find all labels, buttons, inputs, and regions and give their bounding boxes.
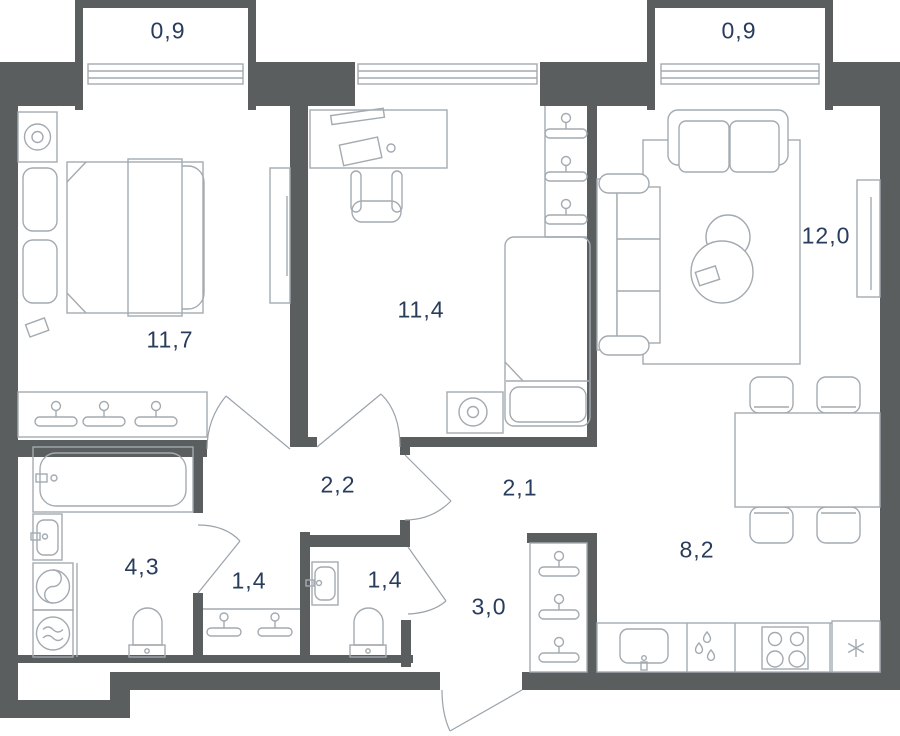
door-swing-room xyxy=(317,394,400,447)
loveseat-icon xyxy=(597,174,660,355)
dishwasher-icon xyxy=(695,632,714,660)
door-swing-entrance xyxy=(442,690,522,731)
bath-sink-icon xyxy=(31,514,62,560)
balcony-window-icon xyxy=(661,64,819,84)
fridge-icon xyxy=(832,621,880,672)
office-chair-icon xyxy=(351,171,402,222)
stove-icon xyxy=(762,627,808,669)
desk-icon xyxy=(310,108,447,168)
coffee-tables-icon xyxy=(691,215,753,303)
windows xyxy=(88,64,819,84)
floor-plan: 0,9 0,9 11,7 11,4 12,0 2,2 2,1 4,3 1,4 1… xyxy=(0,0,900,736)
kitchen-sink-icon xyxy=(620,629,668,670)
picture-frame-icon xyxy=(26,318,49,337)
door-swing-corridor xyxy=(405,455,451,520)
nightstand-lamp-icon xyxy=(18,112,57,162)
door-swing-bathroom xyxy=(198,525,240,593)
wardrobe-hangers-icon xyxy=(18,392,207,437)
living-room-furniture xyxy=(597,110,880,543)
wardrobe-hangers-icon xyxy=(545,106,587,237)
double-bed-icon xyxy=(23,159,204,316)
room-furniture xyxy=(310,106,590,433)
window-icon xyxy=(358,64,537,84)
door-swing-bedroom xyxy=(207,396,290,449)
wc-sink-icon xyxy=(306,562,338,605)
toilet-icon xyxy=(129,608,165,657)
tv-icon xyxy=(857,180,880,297)
dresser-tv-icon xyxy=(270,168,290,303)
wc-toilet-icon xyxy=(350,608,386,657)
balcony-window-icon xyxy=(88,64,243,84)
nightstand-lamp-icon xyxy=(447,392,503,433)
plan-drawing xyxy=(0,0,900,736)
wc-fixtures xyxy=(306,562,386,657)
bathroom-fixtures xyxy=(31,447,193,657)
bedroom-furniture xyxy=(18,112,290,437)
sofa-icon xyxy=(668,110,788,172)
door-swing-wc xyxy=(408,547,446,614)
washing-machine-icon xyxy=(33,563,73,610)
storage-hangers-icon xyxy=(203,609,300,636)
dining-table-icon xyxy=(735,413,880,507)
kitchen-fixtures xyxy=(530,543,880,672)
walls xyxy=(0,0,900,718)
single-bed-icon xyxy=(505,237,590,426)
hall-closet-hangers-icon xyxy=(530,543,587,672)
